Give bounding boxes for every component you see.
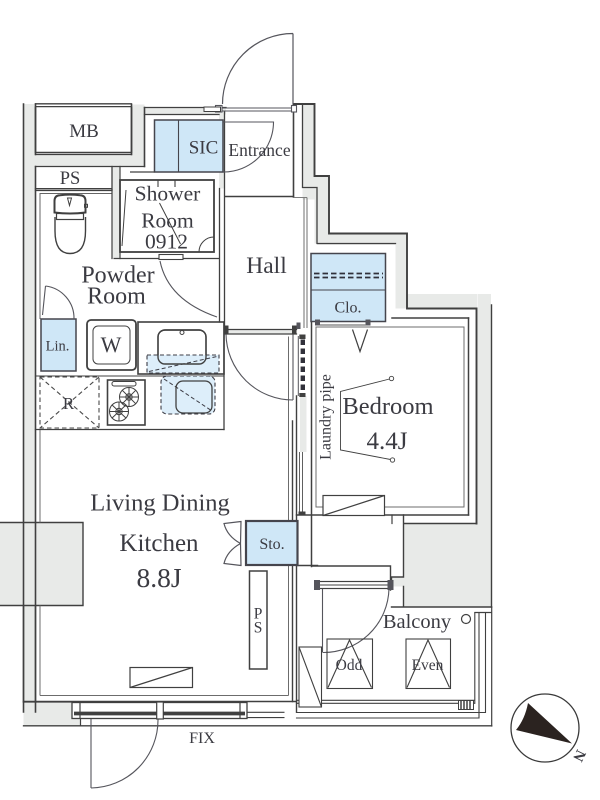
svg-text:Hall: Hall <box>246 253 287 279</box>
svg-text:Shower: Shower <box>135 182 201 206</box>
svg-text:Room: Room <box>87 284 146 310</box>
svg-text:PS: PS <box>60 169 81 189</box>
svg-text:Bedroom: Bedroom <box>342 393 433 420</box>
svg-text:W: W <box>101 332 122 357</box>
svg-text:Kitchen: Kitchen <box>119 530 199 557</box>
svg-text:S: S <box>254 620 263 637</box>
svg-text:Entrance: Entrance <box>228 140 290 160</box>
svg-text:8.8J: 8.8J <box>136 562 181 593</box>
svg-text:Laundry pipe: Laundry pipe <box>318 374 335 460</box>
svg-text:4.4J: 4.4J <box>367 428 408 455</box>
svg-text:Living Dining: Living Dining <box>90 490 230 517</box>
svg-text:MB: MB <box>69 121 99 142</box>
svg-text:Even: Even <box>412 657 444 674</box>
svg-text:Balcony: Balcony <box>383 611 452 633</box>
svg-text:FIX: FIX <box>189 730 215 747</box>
svg-text:R: R <box>63 394 75 413</box>
svg-text:SIC: SIC <box>189 138 219 159</box>
svg-text:Odd: Odd <box>336 657 363 674</box>
svg-text:Lin.: Lin. <box>46 339 70 355</box>
svg-text:Clo.: Clo. <box>334 300 361 317</box>
svg-text:Sto.: Sto. <box>259 536 284 553</box>
svg-text:0912: 0912 <box>145 230 188 254</box>
